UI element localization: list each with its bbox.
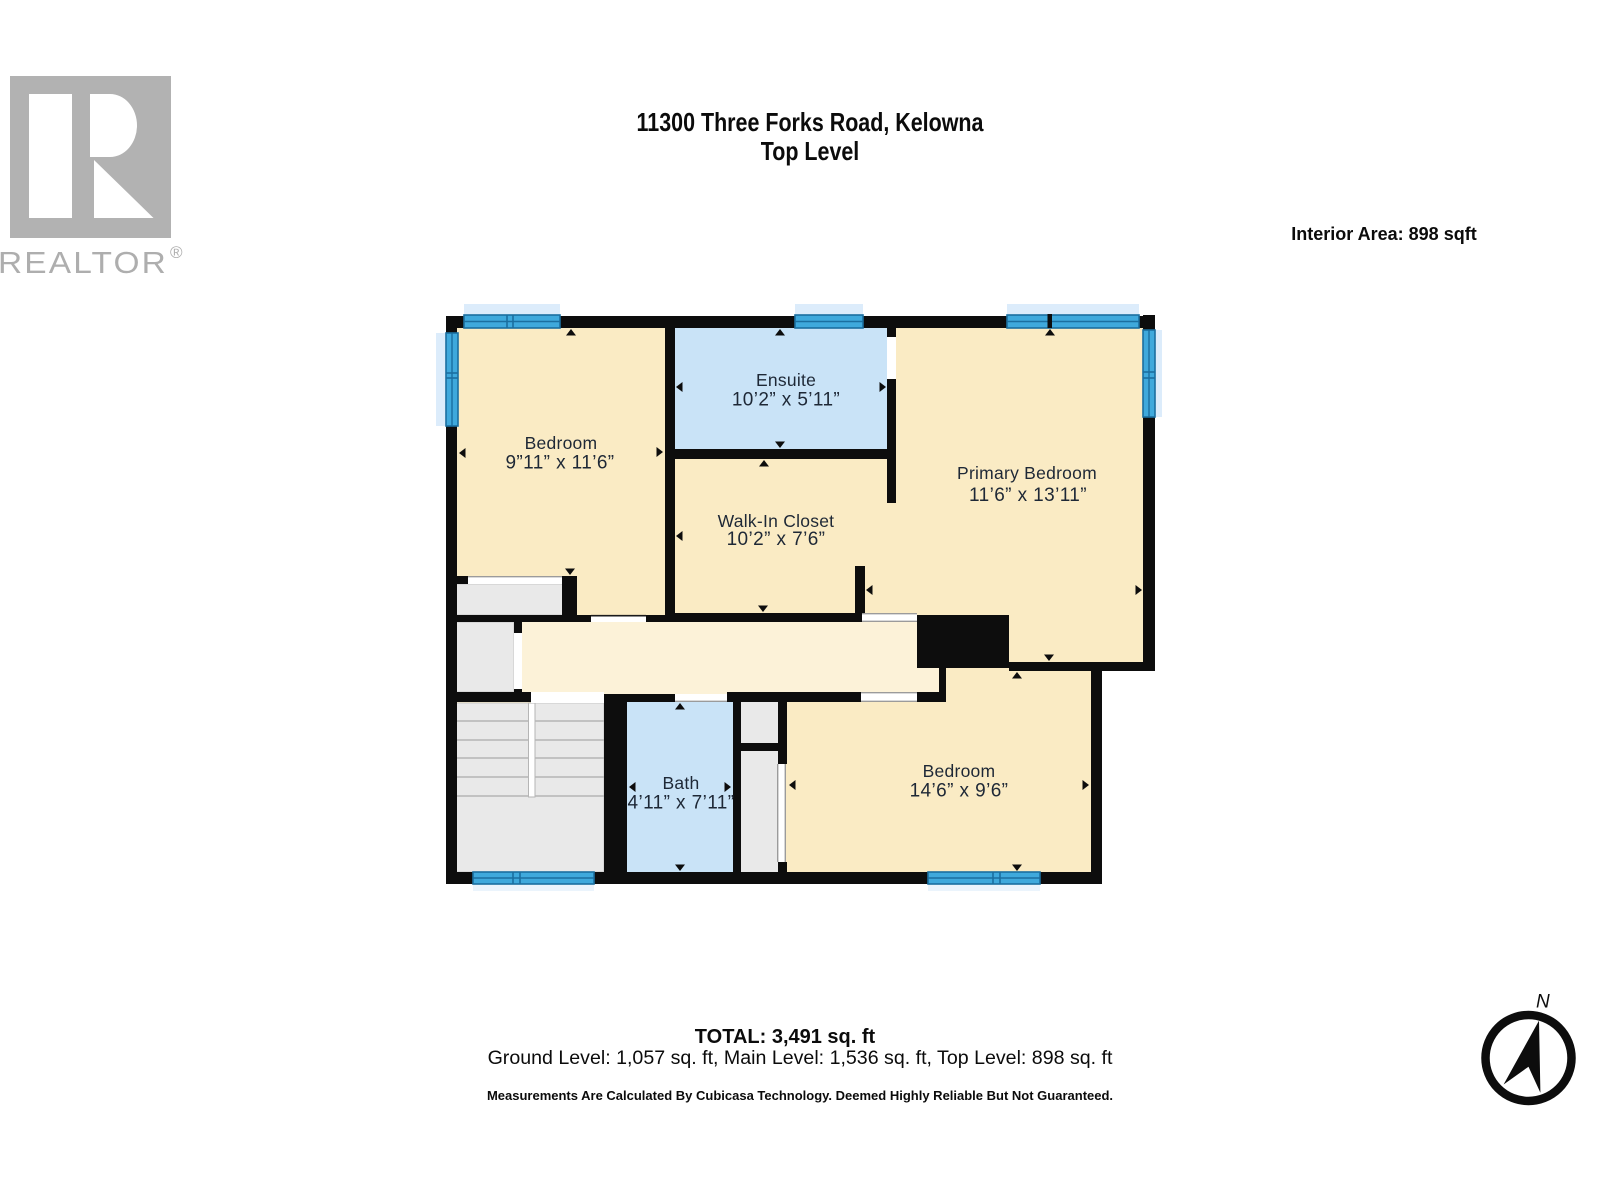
svg-text:Primary Bedroom: Primary Bedroom xyxy=(957,463,1097,483)
svg-text:14’6” x 9’6”: 14’6” x 9’6” xyxy=(910,781,1009,802)
svg-text:Bedroom: Bedroom xyxy=(923,761,996,781)
svg-text:Walk-In Closet: Walk-In Closet xyxy=(718,511,835,531)
svg-text:Bedroom: Bedroom xyxy=(525,433,598,453)
svg-text:11’6” x 13’11”: 11’6” x 13’11” xyxy=(969,485,1087,506)
svg-text:10’2” x 5’11”: 10’2” x 5’11” xyxy=(732,390,840,411)
svg-text:®: ® xyxy=(170,243,183,262)
svg-text:REALTOR: REALTOR xyxy=(0,245,168,280)
svg-text:10’2” x 7’6”: 10’2” x 7’6” xyxy=(727,529,826,550)
svg-text:9”11” x 11’6”: 9”11” x 11’6” xyxy=(505,453,614,474)
svg-text:Ensuite: Ensuite xyxy=(756,370,816,390)
svg-text:Bath: Bath xyxy=(663,773,700,793)
svg-text:4’11” x 7’11”: 4’11” x 7’11” xyxy=(628,793,735,814)
svg-text:N: N xyxy=(1536,992,1550,1013)
